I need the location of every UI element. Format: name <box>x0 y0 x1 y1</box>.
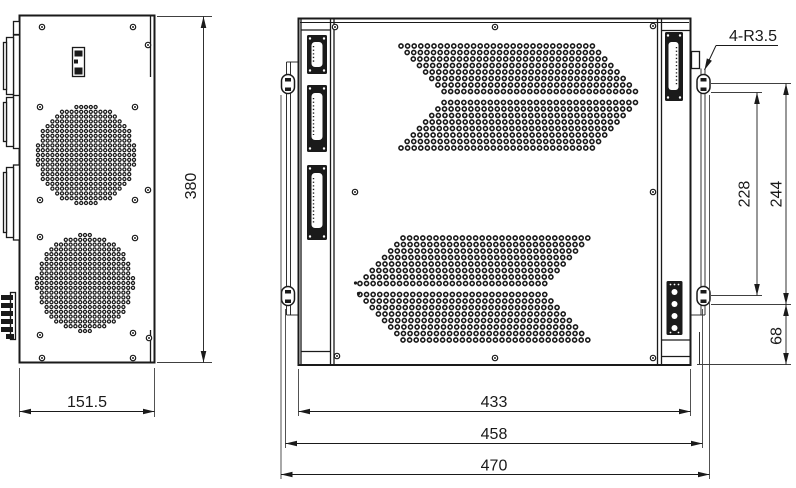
dim-side-width: 151.5 <box>20 368 155 417</box>
rear-view <box>282 19 711 366</box>
engineering-drawing: 380 151.5 433 458 470 228 244 <box>0 0 796 488</box>
dim-body-width: 433 <box>299 369 691 416</box>
dim-label-flange-width: 458 <box>481 426 508 443</box>
side-view <box>1 16 155 363</box>
mount-flange-right <box>691 52 711 316</box>
card-connector-2 <box>307 85 327 152</box>
dim-label-height: 380 <box>183 173 200 200</box>
dsub-connector-1 <box>4 35 20 97</box>
mount-flange-left <box>282 62 299 315</box>
terminal-comb <box>1 293 16 340</box>
dsub-connector-3 <box>4 165 20 240</box>
fan-grille-top <box>36 105 135 204</box>
dim-slot-span-inner: 228 <box>711 93 762 296</box>
radius-note-label: 4-R3.5 <box>729 28 777 45</box>
rivet-hole <box>357 292 360 295</box>
fan-grille-bottom <box>35 233 134 332</box>
radius-note: 4-R3.5 <box>705 28 779 70</box>
dim-label-body-width: 433 <box>481 394 508 411</box>
card-connector-1 <box>307 35 327 74</box>
dim-label-slot-span-outer: 244 <box>769 181 786 208</box>
dim-label-slot-span-inner: 228 <box>737 181 754 208</box>
dim-height: 380 <box>157 17 212 363</box>
card-connector-right <box>665 32 683 101</box>
dsub-connector-2 <box>4 96 20 149</box>
dim-label-slot-offset: 68 <box>769 327 786 345</box>
drawing-sheet: 380 151.5 433 458 470 228 244 <box>0 0 796 488</box>
right-edge-bump <box>692 52 700 69</box>
card-connector-3 <box>307 165 327 240</box>
power-terminal-block <box>667 281 683 335</box>
rivet-hole <box>354 281 357 284</box>
dim-label-side-width: 151.5 <box>67 394 107 411</box>
side-top-tab <box>14 22 20 35</box>
dim-label-overall-width: 470 <box>481 458 508 475</box>
dim-slot-offset: 68 <box>697 305 791 365</box>
power-inlet <box>73 48 85 77</box>
